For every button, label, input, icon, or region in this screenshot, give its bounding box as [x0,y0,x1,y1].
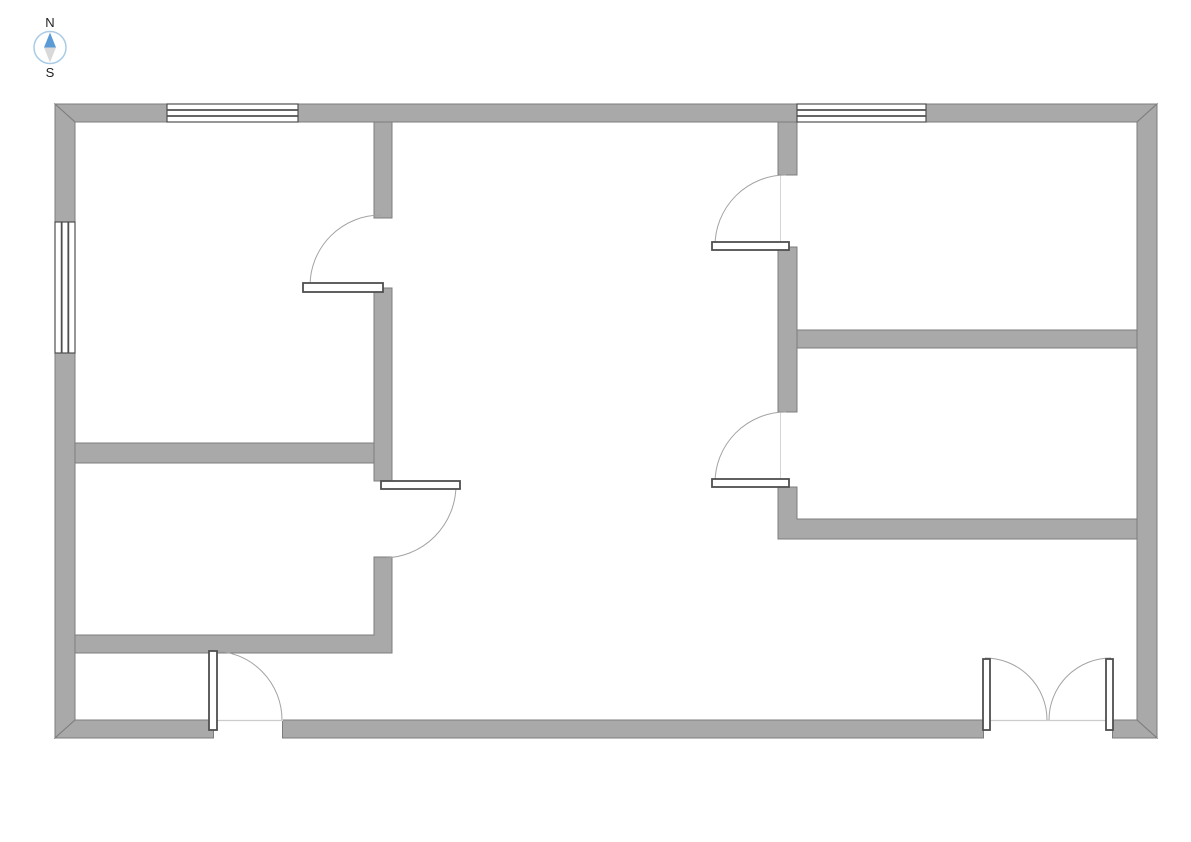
door-opening-cut [983,719,1113,739]
floor-plan-svg: N S [0,0,1191,842]
window-top-right [797,104,926,122]
door-top-right-room-swing-arc [715,175,786,246]
wall-interior-middle-lower [75,557,392,653]
wall-interior-right-lower [778,487,1137,539]
wall-exterior-left [55,104,75,738]
wall-exterior-right [1137,104,1157,738]
door-top-left-room-swing-arc [310,215,381,286]
compass-south-label: S [46,65,55,80]
door-bottom-left-room-swing-arc [383,485,456,558]
wall-interior-middle-upper [374,122,392,218]
wall-interior-right-middle [778,247,797,412]
wall-interior-right-upper [778,122,797,175]
window-top-left [167,104,298,122]
door-middle-right-room-swing-arc [715,412,786,483]
window-left [55,222,75,353]
door-top-right-room-leaf [712,242,789,250]
wall-interior-right-divider [797,330,1137,348]
floor-plan-layer [55,104,1157,739]
wall-interior-left-divider [75,443,374,463]
compass-needle-north-icon [44,33,56,48]
door-opening-cut [213,719,283,739]
compass-needle-south-icon [44,48,56,63]
entry-double-door-left-leaf-leaf [983,659,990,730]
entry-double-door-left-leaf-swing-arc [985,658,1047,720]
door-middle-right-room-leaf [712,479,789,487]
entry-door-left-swing-arc [213,651,282,720]
compass: N S [34,15,66,80]
compass-north-label: N [45,15,54,30]
entry-door-left-leaf [209,651,217,730]
entry-double-door-right-leaf-swing-arc [1049,658,1111,720]
door-top-left-room-leaf [303,283,383,292]
floor-plan-page: N S [0,0,1191,842]
door-bottom-left-room-leaf [381,481,460,489]
wall-interior-middle-center [374,288,392,481]
entry-double-door-right-leaf-leaf [1106,659,1113,730]
